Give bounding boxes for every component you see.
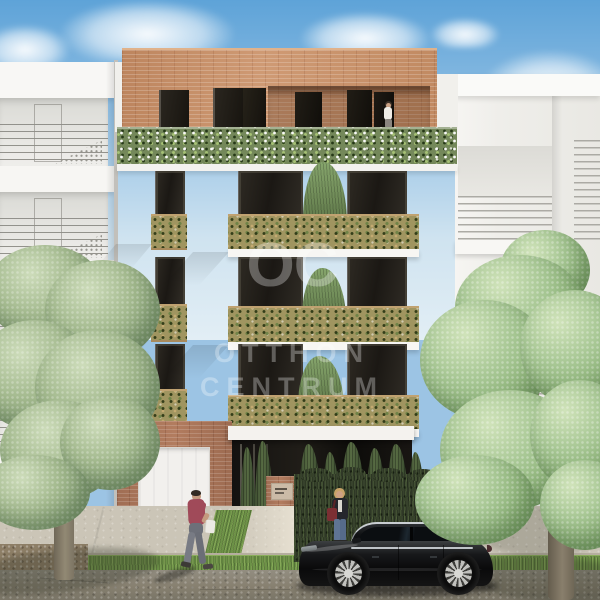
man-leg-back: [195, 532, 207, 565]
car-door-seam: [398, 545, 399, 580]
car-wheel-front: [327, 552, 370, 595]
balcony-planter: [228, 306, 419, 346]
ivy-planter-band: [117, 127, 457, 166]
hedge-top-bump: [372, 468, 404, 482]
left-balcony-opening: [0, 98, 108, 166]
penthouse-terrace-door: [295, 92, 322, 130]
man-walking: [179, 490, 219, 582]
architectural-rendering: OC OTTHON CENTRUM: [0, 0, 600, 600]
man-shoe: [203, 563, 213, 569]
hedge-top-bump: [336, 467, 366, 481]
woman-on-terrace: [381, 101, 395, 130]
penthouse-window: [213, 88, 243, 130]
man-hair: [191, 490, 201, 496]
penthouse-window: [243, 88, 266, 130]
car-door-handle: [372, 556, 379, 558]
ivy-band-slab: [117, 164, 457, 171]
balcony-planter: [228, 214, 419, 253]
right-building-roof-slab: [455, 74, 600, 96]
woman-face: [336, 491, 343, 498]
entrance-canopy: [228, 426, 414, 440]
main-building-right-backdrop: [437, 74, 458, 132]
foliage-blob: [415, 455, 535, 545]
left-floor-slab: [0, 166, 114, 192]
man-leg-front: [183, 532, 195, 565]
wheel-hub: [344, 569, 353, 578]
balcony-slab: [228, 249, 419, 257]
left-building-parapet: [0, 62, 114, 98]
right-street-tree: [405, 220, 600, 600]
penthouse-terrace-door: [347, 90, 372, 130]
narrow-window: [155, 171, 185, 217]
woman-shirt: [338, 500, 342, 512]
man-white-bag: [204, 520, 215, 534]
left-street-tree: [0, 240, 170, 585]
right-building-balcony-shadow: [458, 146, 552, 196]
entrance-nameplate: [271, 483, 293, 500]
cloud: [430, 18, 500, 48]
nameplate-text-line: [275, 488, 287, 490]
hedge-top-bump: [300, 468, 332, 482]
nameplate-text-line: [275, 492, 284, 494]
penthouse-window: [159, 90, 189, 130]
road-crack: [200, 589, 290, 590]
